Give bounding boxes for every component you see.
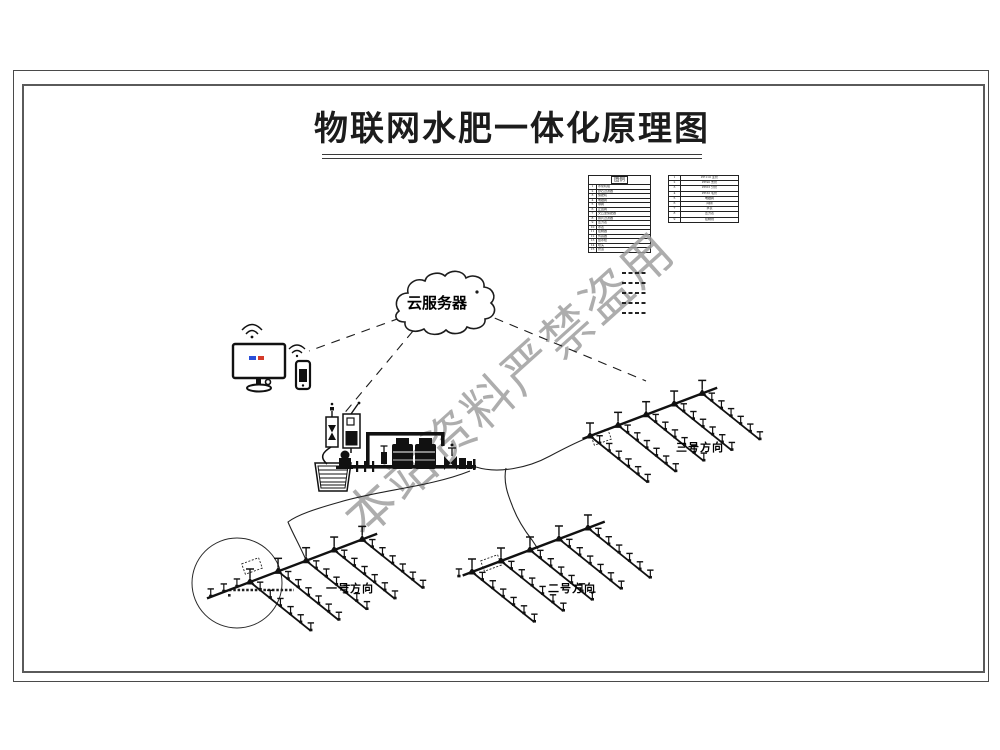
phone-screen <box>299 369 307 382</box>
monitor-base <box>247 385 271 392</box>
field-label: 二号方向 <box>548 581 596 595</box>
monitor-screen-red-mark <box>258 356 264 360</box>
field-label: 三号方向 <box>676 440 724 454</box>
fertilizer-tank-a-icon <box>326 403 338 447</box>
tank-feed-pipe <box>323 447 331 464</box>
sprinkler-field-2: 二号方向 <box>456 515 654 623</box>
cloud-dot <box>475 290 478 293</box>
supply-pipe-curves <box>288 438 587 560</box>
field-label: 一号方向 <box>326 581 374 595</box>
diagram-canvas: 云服务器 <box>0 0 1000 750</box>
sprinkler-field-3: 三号方向 <box>583 380 764 482</box>
link-cloud-to-station <box>342 331 413 416</box>
monitor-screen-blue-mark <box>249 356 256 360</box>
pipe-curve-to-field3 <box>476 438 587 470</box>
wifi-icon <box>242 325 262 339</box>
phone-button <box>302 384 304 386</box>
phone-icon <box>289 345 310 389</box>
monitor-screen <box>233 344 285 378</box>
cloud-server-icon: 云服务器 <box>396 271 495 334</box>
wifi-icon <box>289 345 305 357</box>
monitor-icon <box>233 325 285 392</box>
monitor-base-knob <box>266 380 271 385</box>
legend-line-samples <box>622 273 646 313</box>
detail-note-dot <box>228 594 231 597</box>
link-cloud-to-devices <box>309 318 400 351</box>
link-cloud-to-field3 <box>480 312 646 381</box>
filter-unit-icon <box>392 438 436 469</box>
fertilizer-tank-b-icon <box>343 402 360 448</box>
inline-valve-icon <box>381 446 388 464</box>
cloud-label: 云服务器 <box>407 294 468 312</box>
sprinkler-field-1: 一号方向 <box>207 526 426 631</box>
pipe-curve-to-field1 <box>288 471 470 560</box>
